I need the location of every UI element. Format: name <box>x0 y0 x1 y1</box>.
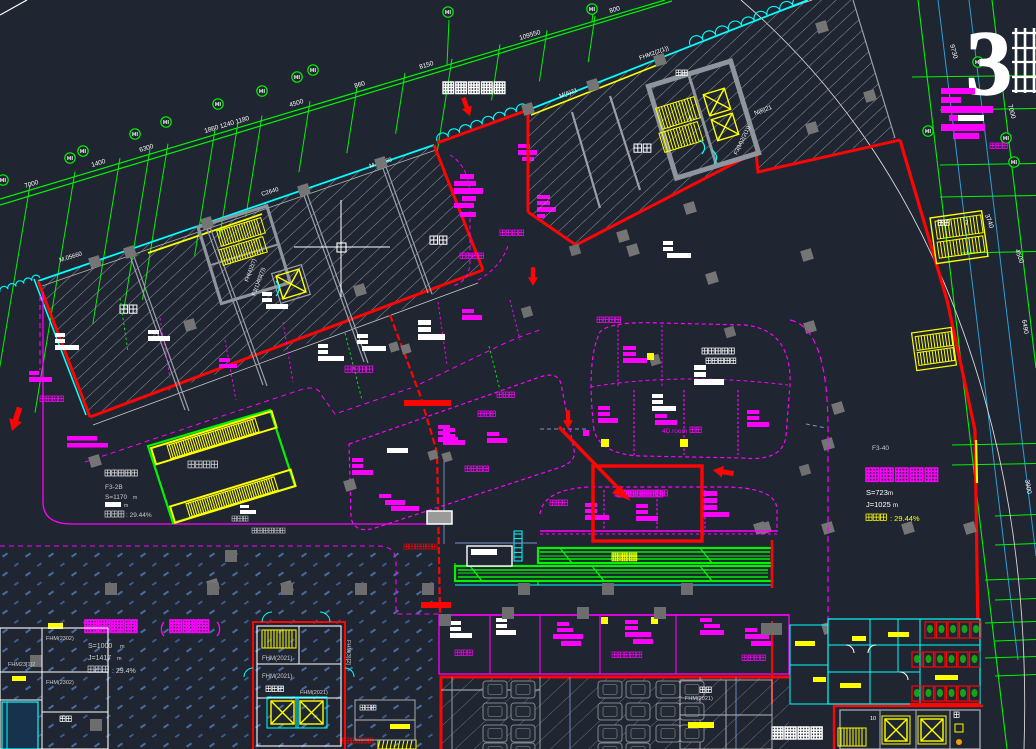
svg-text:m: m <box>893 503 898 509</box>
svg-text:: 29.4%: : 29.4% <box>112 668 136 675</box>
svg-text:FHM(2021): FHM(2021) <box>262 656 292 662</box>
svg-text:F3-2B: F3-2B <box>105 484 123 491</box>
svg-text:S=1170: S=1170 <box>105 494 127 501</box>
svg-text:S=1000: S=1000 <box>88 643 112 650</box>
svg-text:: 29.44%: : 29.44% <box>126 512 152 519</box>
svg-text:J=1025: J=1025 <box>866 500 891 509</box>
svg-text:m: m <box>124 503 128 509</box>
svg-text:m: m <box>133 495 137 501</box>
svg-text:FHM(2021): FHM(2021) <box>262 674 292 680</box>
svg-text:FHM(2302): FHM(2302) <box>46 636 74 642</box>
svg-text:A: A <box>688 116 692 122</box>
svg-text:m: m <box>120 644 125 650</box>
svg-text:: 29.44%: : 29.44% <box>890 514 920 523</box>
svg-text:S=723: S=723 <box>866 488 888 497</box>
svg-text:F3-40: F3-40 <box>872 445 889 452</box>
svg-text:FHM(2021): FHM(2021) <box>685 696 713 702</box>
svg-text:m: m <box>888 491 893 497</box>
svg-text:4D.room: 4D.room <box>662 428 687 435</box>
svg-text:FHM23[1]2: FHM23[1]2 <box>8 662 35 668</box>
svg-text:FHM(2021): FHM(2021) <box>300 690 328 696</box>
svg-text:m: m <box>117 656 122 662</box>
svg-text:FHM(3)[2]: FHM(3)[2] <box>345 640 351 665</box>
svg-text:FHM(2302): FHM(2302) <box>46 680 74 686</box>
svg-text:10: 10 <box>870 716 876 722</box>
svg-text:3: 3 <box>966 12 1012 114</box>
